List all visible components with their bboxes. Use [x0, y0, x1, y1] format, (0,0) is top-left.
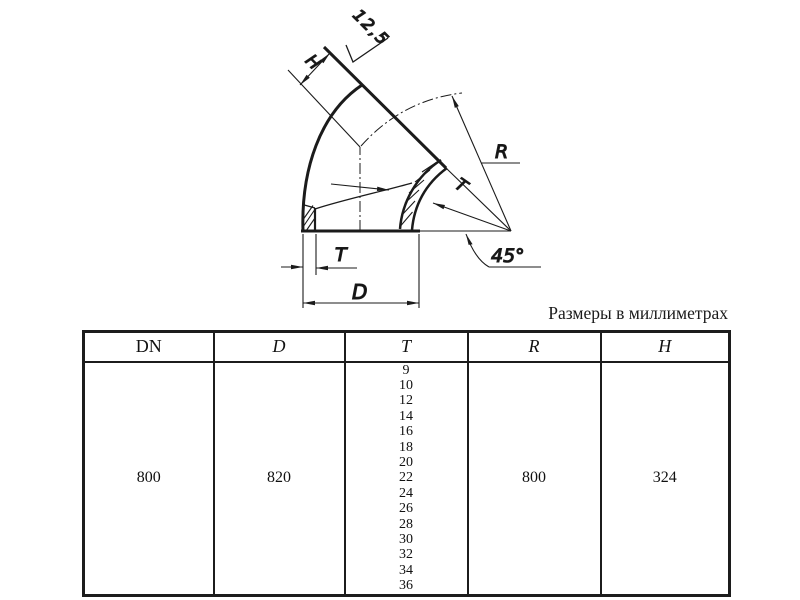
- d-arrow-right: [407, 301, 419, 305]
- d-label: D: [352, 280, 367, 304]
- t-value: 30: [346, 532, 467, 547]
- t-value: 22: [346, 470, 467, 485]
- t-value: 16: [346, 424, 467, 439]
- t-value: 24: [346, 486, 467, 501]
- cell-h: 324: [601, 362, 730, 596]
- t-value: 26: [346, 501, 467, 516]
- t-value: 12: [346, 393, 467, 408]
- section-hatch: [401, 162, 438, 226]
- t-value: 34: [346, 563, 467, 578]
- t-value: 28: [346, 517, 467, 532]
- h-extension-line: [288, 70, 360, 147]
- t-bottom-arrow-left: [291, 265, 303, 269]
- cell-t: 9 10 12 14 16 18 20 22 24 26 28 30 32 34…: [345, 362, 468, 596]
- dim-t-bottom: T: [281, 244, 357, 270]
- t-bottom-arrow-right: [316, 266, 328, 270]
- cell-dn: 800: [84, 362, 214, 596]
- angle-arrow: [466, 234, 473, 245]
- centerlines: [360, 93, 462, 231]
- cell-d: 820: [214, 362, 345, 596]
- d-arrow-left: [303, 301, 315, 305]
- t-value: 10: [346, 378, 467, 393]
- extension-lines: [288, 70, 511, 308]
- angle-label: 45°: [491, 245, 525, 267]
- header-cell-t: T: [345, 332, 468, 362]
- roughness-value: 12,5: [349, 5, 393, 49]
- t-value: 18: [346, 440, 467, 455]
- elbow-technical-drawing: H 12,5 R T 45°: [0, 0, 800, 330]
- dimensions-table: DN D T R H 800 820 9 10 12 14 16 18 20 2…: [82, 330, 731, 597]
- t-value: 36: [346, 578, 467, 593]
- page: H 12,5 R T 45°: [0, 0, 800, 600]
- t-value: 14: [346, 409, 467, 424]
- header-cell-h: H: [601, 332, 730, 362]
- header-cell-r: R: [468, 332, 601, 362]
- t-value: 32: [346, 547, 467, 562]
- t-bottom-label: T: [335, 244, 348, 266]
- left-wall-hatch: [303, 206, 315, 232]
- dim-h: H: [300, 51, 330, 85]
- t-section-label: T: [451, 175, 472, 198]
- bend-centerline-arc: [361, 93, 462, 146]
- r-arrow: [452, 96, 459, 108]
- roughness-mark: 12,5: [346, 5, 393, 62]
- face-plane-extension: [446, 168, 511, 231]
- header-cell-d: D: [214, 332, 345, 362]
- t-value: 9: [346, 363, 467, 378]
- dim-angle: 45°: [466, 234, 541, 267]
- header-cell-dn: DN: [84, 332, 214, 362]
- t-arrow-right: [433, 203, 445, 209]
- angle-arc: [466, 234, 489, 267]
- units-caption: Размеры в миллиметрах: [548, 303, 728, 324]
- dim-d: D: [303, 280, 419, 305]
- t-leader-right: [433, 203, 511, 231]
- header-row: DN D T R H: [84, 332, 730, 362]
- t-value: 20: [346, 455, 467, 470]
- top-face-line: [324, 47, 446, 168]
- elbow-body-outline: [301, 47, 446, 231]
- h-label: H: [301, 51, 324, 74]
- section-ellipse-wall: [400, 160, 447, 230]
- t-values-stack: 9 10 12 14 16 18 20 22 24 26 28 30 32 34…: [346, 363, 467, 594]
- outer-arc: [303, 85, 362, 231]
- r-label: R: [495, 141, 508, 163]
- section-inner-arc: [412, 168, 447, 230]
- dim-r: R: [452, 96, 520, 231]
- data-row: 800 820 9 10 12 14 16 18 20 22 24 26 28 …: [84, 362, 730, 596]
- cell-r: 800: [468, 362, 601, 596]
